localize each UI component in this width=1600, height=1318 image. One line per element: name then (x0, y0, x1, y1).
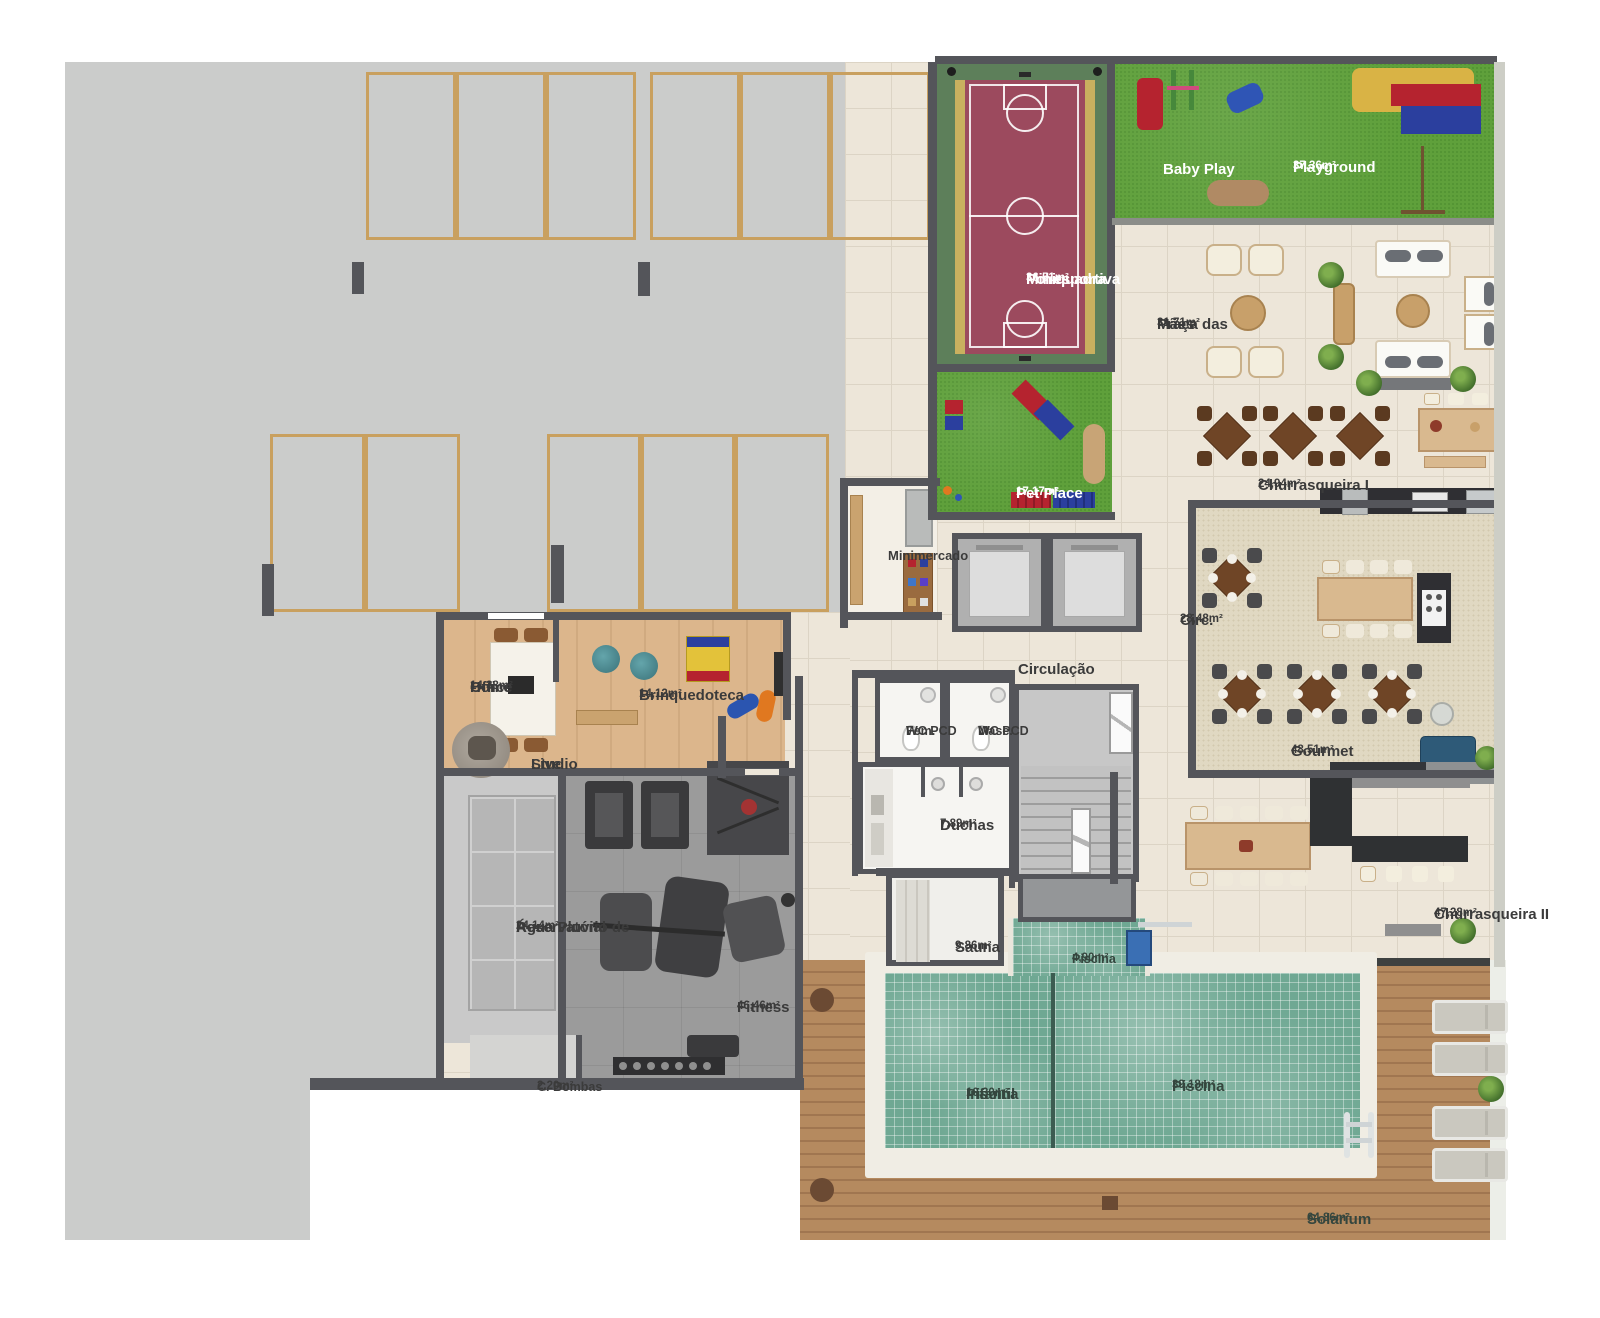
gourmet-table (1364, 666, 1422, 724)
studio-chair (468, 736, 496, 760)
bbq1-table (1199, 408, 1257, 466)
burner (1426, 594, 1432, 600)
dining-table (1317, 577, 1413, 621)
parking-pillar (352, 262, 364, 294)
gourmet-table (1289, 666, 1347, 724)
chair (1197, 406, 1212, 421)
sand-bench (1207, 180, 1269, 206)
parking-pillar (262, 564, 274, 616)
bbq2-stool-row (1360, 866, 1376, 882)
lounger-fold (1485, 1111, 1488, 1135)
cushion (1385, 250, 1411, 262)
sofa (1375, 240, 1451, 278)
table-item (1430, 420, 1442, 432)
pool-main (1055, 973, 1360, 1148)
water-tank (468, 795, 556, 1011)
chair (1287, 664, 1302, 679)
deck-edge-dark (1372, 958, 1490, 966)
product (908, 578, 916, 586)
room-playground (1115, 62, 1497, 225)
agility-ramp-blue (1033, 399, 1074, 440)
cushion (1417, 356, 1443, 368)
burner (1436, 606, 1442, 612)
treadmill (585, 781, 633, 849)
bbq1-bench (1424, 456, 1486, 468)
chair (1212, 664, 1227, 679)
pet-toy (943, 486, 952, 495)
wall (783, 612, 791, 720)
parking-stall (270, 434, 365, 612)
shower-divider (959, 767, 963, 797)
play-house-roof (687, 637, 729, 647)
plate (1237, 670, 1247, 680)
bean-bag (592, 645, 620, 673)
bbq1-bar-table (1418, 408, 1502, 452)
wall (553, 618, 559, 682)
plant (1318, 344, 1344, 370)
agility-block-red (945, 400, 963, 414)
sun-lounger (1432, 1000, 1508, 1034)
elevator-shaft (1047, 533, 1142, 632)
treadmill (641, 781, 689, 849)
slab-cutout (310, 1090, 802, 1242)
wall (876, 868, 1016, 876)
lounger-fold (1485, 1153, 1488, 1177)
bbq2-chair-row (1190, 806, 1208, 820)
court-post (1093, 67, 1102, 76)
gym-bench (687, 1035, 739, 1057)
room-reservatorio (444, 775, 560, 1043)
room-miniquadra (935, 62, 1115, 372)
treadmill-belt (651, 793, 679, 837)
tv-panel (774, 652, 783, 696)
armchair (1248, 346, 1284, 378)
bbq2-bar-counter (1352, 836, 1468, 862)
chair (1202, 548, 1217, 563)
lounger-fold (1485, 1005, 1488, 1029)
dumbbell-rack (613, 1057, 725, 1075)
side-table-round (1430, 702, 1454, 726)
gourmet-table (1204, 550, 1262, 608)
armchair (1464, 314, 1498, 350)
coffee-table-round (1230, 295, 1266, 331)
pool-pump (1126, 930, 1152, 966)
deck-hatch (1102, 1196, 1118, 1210)
wall (928, 512, 1115, 520)
chair (1330, 406, 1345, 421)
stair-rail (1071, 808, 1091, 874)
burner (1426, 606, 1432, 612)
bbq2-bench-gray (1385, 924, 1441, 936)
parking-stall (456, 72, 546, 240)
pool-rail (1138, 922, 1192, 927)
product (920, 598, 928, 606)
parking-stall (830, 72, 930, 240)
armchair (1206, 346, 1242, 378)
court-arc-top (1006, 94, 1044, 132)
dining-chair-row (1322, 624, 1340, 638)
elevator-car (969, 551, 1030, 617)
wall-light (1112, 218, 1497, 225)
wall (1188, 770, 1505, 778)
cushion (1484, 282, 1494, 306)
sun-lounger (1432, 1106, 1508, 1140)
console-table (1333, 283, 1355, 345)
wall (928, 364, 1115, 372)
elevator-car (1064, 551, 1125, 617)
plate (1227, 554, 1237, 564)
play-house (686, 636, 730, 682)
market-plank (850, 495, 863, 605)
court-side-strip (1085, 80, 1095, 354)
elevator-door (1071, 545, 1118, 550)
agility-block-blue (945, 416, 963, 430)
room-gourmet (1196, 508, 1505, 772)
parking-pillar (638, 262, 650, 296)
climb-frame-bar (1167, 86, 1199, 90)
side-table-round (1396, 294, 1430, 328)
swing-pole (1421, 146, 1424, 212)
wall (1110, 772, 1118, 884)
court-surface (965, 80, 1085, 354)
stool-row (1424, 393, 1440, 405)
play-house-base (687, 671, 729, 681)
burner (1436, 594, 1442, 600)
cushion (1417, 250, 1443, 262)
cushion (1484, 322, 1494, 346)
product (908, 598, 916, 606)
plant (1478, 1076, 1504, 1102)
ladder-rail (1344, 1112, 1350, 1158)
plant (1318, 262, 1344, 288)
parking-stall (366, 72, 456, 240)
pet-toy (955, 494, 962, 501)
bbq1-table (1332, 408, 1390, 466)
gourmet-table (1214, 666, 1272, 724)
treadmill-belt (595, 793, 623, 837)
elevator-door (976, 545, 1023, 550)
wall (1107, 62, 1115, 372)
swing-bar (1401, 210, 1445, 214)
office-chair (524, 738, 548, 752)
plate (1312, 670, 1322, 680)
wall (852, 676, 858, 876)
kettlebell (781, 893, 795, 907)
baby-slide (1137, 78, 1163, 130)
room-wc-masc (945, 678, 1015, 762)
table-item (1239, 840, 1253, 852)
pool-ladder (1344, 1112, 1374, 1158)
pet-bench (1083, 424, 1105, 484)
armchair (1248, 244, 1284, 276)
room-wc-fem (875, 678, 945, 762)
toy-shelf (576, 710, 638, 725)
wall (852, 670, 1015, 678)
stove (1422, 590, 1446, 626)
climb-frame (1171, 70, 1176, 110)
outer-wall-right (1494, 62, 1505, 967)
bbq2-chair-row (1190, 872, 1208, 886)
bbq2-table (1185, 822, 1311, 870)
parking-stall (641, 434, 735, 612)
play-structure-red (1391, 84, 1481, 106)
bbq1-table (1265, 408, 1323, 466)
bean-bag (630, 652, 658, 680)
pool-divider (1051, 973, 1055, 1148)
deck-drain (810, 1178, 834, 1202)
stair-closet (1109, 692, 1133, 754)
wall (1188, 500, 1505, 508)
wall (1188, 500, 1196, 778)
deck-drain (810, 988, 834, 1012)
parking-stall (650, 72, 740, 240)
chair (1362, 664, 1377, 679)
stairwell (1013, 684, 1139, 882)
punching-bag (741, 799, 757, 815)
pool-infantil (885, 973, 1053, 1148)
wall (795, 676, 803, 1086)
shower-divider (921, 767, 925, 797)
cushion (1385, 356, 1411, 368)
court-center-circle (1006, 197, 1044, 235)
wall (840, 612, 942, 620)
gym-machine (721, 894, 786, 964)
plant (1356, 370, 1382, 396)
wall (1009, 678, 1015, 888)
dumbbells (619, 1062, 627, 1070)
office-chair (494, 628, 518, 642)
wall (928, 62, 937, 520)
bench (871, 795, 884, 815)
ladder-step (1346, 1122, 1372, 1127)
plant (1450, 366, 1476, 392)
sink (920, 687, 936, 703)
parking-stall (740, 72, 830, 240)
parking-pillar (551, 545, 564, 603)
table-item (1470, 422, 1480, 432)
sofa-base (1377, 378, 1451, 390)
wall (840, 478, 848, 628)
wall (840, 478, 940, 486)
armchair (1206, 244, 1242, 276)
chair (1263, 406, 1278, 421)
product (920, 578, 928, 586)
basketball-hoop (1019, 356, 1031, 361)
climb-frame (1189, 70, 1194, 110)
court-arc-bottom (1006, 300, 1044, 338)
bbq2-counter-vertical (1310, 778, 1352, 846)
door-gap (745, 769, 779, 775)
sun-lounger (1432, 1042, 1508, 1076)
floor-plan: Baby Play Playground37,36m² MiniquadraPo… (0, 0, 1600, 1318)
wall (436, 612, 444, 1086)
play-structure-blue (1401, 106, 1481, 134)
sauna-bench (896, 880, 930, 962)
window-gap (488, 613, 544, 619)
parking-stall (546, 72, 636, 240)
plate (1387, 670, 1397, 680)
bench (871, 823, 884, 855)
wall (935, 56, 1497, 64)
sink (990, 687, 1006, 703)
play-toy-blue (1224, 80, 1266, 115)
dining-chair-row (1322, 560, 1340, 574)
armchair (1464, 276, 1498, 312)
pool-equipment-block (1018, 874, 1136, 922)
shower-head (931, 777, 945, 791)
parking-stall (365, 434, 460, 612)
sun-lounger (1432, 1148, 1508, 1182)
basketball-hoop (1019, 72, 1031, 77)
lounger-fold (1485, 1047, 1488, 1071)
court-post (947, 67, 956, 76)
ladder-rail (1368, 1112, 1374, 1158)
court-side-strip (955, 80, 965, 354)
parking-stall (735, 434, 829, 612)
ladder-step (1346, 1138, 1372, 1143)
office-chair (524, 628, 548, 642)
sofa (1375, 340, 1451, 378)
shower-head (969, 777, 983, 791)
